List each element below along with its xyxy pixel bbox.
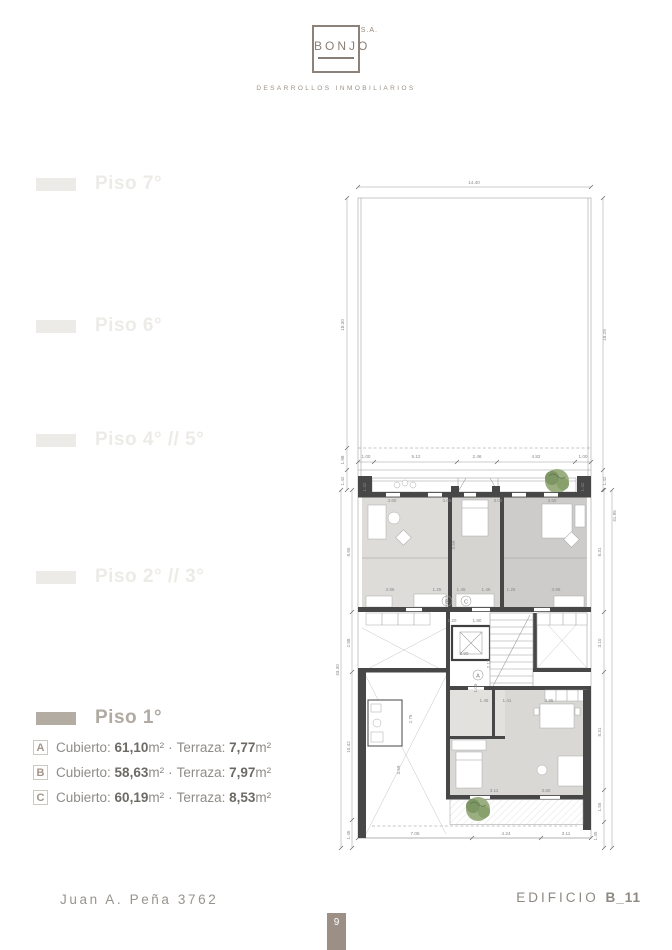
dim-label: 3.85 [545, 698, 554, 703]
logo-sa-text: S.A. [361, 27, 378, 34]
dim-label: 1.41 [503, 698, 512, 703]
legend-row-unit-c: C Cubierto: 60,19m²·Terraza: 8,53m² [33, 788, 271, 807]
tree-icon [545, 469, 569, 493]
floor-item-piso-4-5: Piso 4° // 5° [36, 430, 204, 450]
dim-label: 5.12 [412, 454, 421, 459]
floor-swatch [36, 571, 76, 584]
building-name: EDIFICIO B_11 [516, 890, 641, 905]
dim-label: 3.05 [494, 498, 503, 503]
dim-label: 1.45 [480, 698, 489, 703]
dim-label: 3.85 [552, 587, 561, 592]
legend-row-unit-a: A Cubierto: 61,10m²·Terraza: 7,77m² [33, 738, 271, 757]
dim-label: 2.46 [473, 454, 482, 459]
dim-label: 3.10 [597, 638, 602, 647]
unit-letter-badge: B [33, 765, 48, 780]
dim-label: 4.24 [502, 831, 511, 836]
dim-label: 1.45 [593, 831, 598, 840]
floor-swatch [36, 178, 76, 191]
unit-areas-text: Cubierto: 58,63m²·Terraza: 7,97m² [56, 765, 271, 780]
unit-areas-text: Cubierto: 60,19m²·Terraza: 8,53m² [56, 790, 271, 805]
unit-marker-b: B [445, 600, 449, 606]
dim-label: 1.80 [473, 618, 482, 623]
unit-letter-badge: C [33, 790, 48, 805]
floor-item-piso-7: Piso 7° [36, 174, 162, 194]
logo-underline [318, 57, 354, 59]
logo-tagline: DESARROLLOS INMOBILIARIOS [236, 85, 436, 92]
floor-item-piso-6: Piso 6° [36, 316, 162, 336]
upper-apartments [358, 492, 591, 612]
floor-label: Piso 7° [95, 173, 162, 195]
dim-label: 3.05 [443, 498, 452, 503]
dim-label: 18.28 [602, 329, 607, 341]
dim-label: 2.75 [408, 714, 413, 723]
floor-label: Piso 2° // 3° [95, 566, 204, 588]
unit-marker-c: C [464, 600, 468, 606]
dim-label: 1.45 [346, 830, 351, 839]
unit-letter-badge: A [33, 740, 48, 755]
floor-swatch [36, 320, 76, 333]
page-number-badge: 9 [327, 913, 346, 950]
dim-label: 1.98 [340, 455, 345, 464]
floor-label: Piso 6° [95, 315, 162, 337]
dim-label: 1.25 [507, 587, 516, 592]
unit-marker-a: A [476, 674, 480, 680]
unit-area-legend: A Cubierto: 61,10m²·Terraza: 7,77m² B Cu… [33, 738, 271, 813]
dim-label: 3.60 [542, 788, 551, 793]
logo-company-name: BONJO [314, 39, 358, 53]
rear-patio [358, 672, 446, 838]
dim-label: 8.31 [597, 547, 602, 556]
legend-row-unit-b: B Cubierto: 58,63m²·Terraza: 7,97m² [33, 763, 271, 782]
street-address: Juan A. Peña 3762 [60, 892, 218, 907]
dim-label: 10.42 [346, 741, 351, 753]
dim-label: 3.85 [386, 587, 395, 592]
dim-label: 8.31 [597, 727, 602, 736]
dim-label: 1.42 [580, 482, 585, 491]
dim-label: 3.11 [562, 831, 571, 836]
dim-label: 1.42 [362, 482, 367, 491]
dim-label: 1.42 [602, 476, 607, 485]
tree-icon [466, 797, 490, 821]
dim-label: 2.12 [486, 659, 491, 668]
dim-label: 3.59 [396, 765, 401, 774]
floor-swatch [36, 712, 76, 725]
dim-label: 1.00 [579, 454, 588, 459]
dim-label: 1.45 [482, 587, 491, 592]
dim-label: 1.20 [448, 618, 457, 623]
dim-label: 43.30 [335, 664, 340, 676]
dim-label: 3.59 [451, 540, 456, 549]
floor-label: Piso 4° // 5° [95, 429, 204, 451]
dim-label: 8.65 [346, 547, 351, 556]
dim-label: 2.88 [346, 638, 351, 647]
dim-label: 41.95 [612, 510, 617, 522]
dim-label: 3.60 [548, 498, 557, 503]
bonjo-logo: S.A. BONJO [312, 25, 360, 73]
dim-label: 1.25 [433, 587, 442, 592]
floor-swatch [36, 434, 76, 447]
dim-label: 2.90 [460, 651, 469, 656]
dim-label: 7.05 [411, 831, 420, 836]
dim-label: 1.05 [473, 683, 478, 692]
floor-item-piso-2-3: Piso 2° // 3° [36, 567, 204, 587]
dim-label: 1.00 [362, 454, 371, 459]
dim-label: 14.40 [468, 180, 480, 185]
dim-label: 18.30 [340, 319, 345, 331]
dim-label: 3.11 [490, 788, 499, 793]
unit-areas-text: Cubierto: 61,10m²·Terraza: 7,77m² [56, 740, 271, 755]
floor-plan-drawing: B C A 14.40 18.30 1.98 1.42 43.30 8.65 2… [335, 170, 635, 880]
dim-label: 1.55 [597, 802, 602, 811]
dim-label: 1.45 [457, 587, 466, 592]
dim-label: 3.60 [388, 498, 397, 503]
floor-item-piso-1-active: Piso 1° [36, 708, 162, 728]
dim-label: 1.42 [340, 476, 345, 485]
floor-label: Piso 1° [95, 707, 162, 729]
dim-label: 4.82 [532, 454, 541, 459]
